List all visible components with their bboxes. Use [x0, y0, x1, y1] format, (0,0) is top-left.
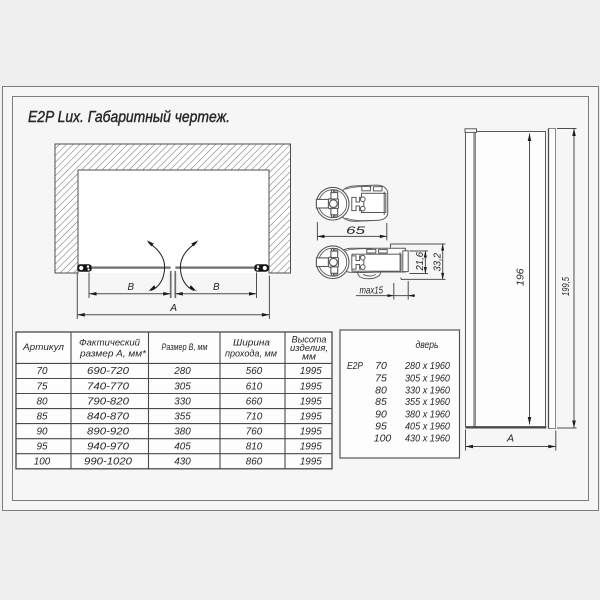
- svg-text:75: 75: [37, 381, 48, 392]
- svg-text:430: 430: [174, 457, 191, 468]
- svg-text:790-820: 790-820: [87, 396, 130, 407]
- svg-text:Размер В, мм: Размер В, мм: [162, 342, 208, 352]
- svg-text:65: 65: [346, 225, 367, 237]
- svg-text:380: 380: [174, 426, 191, 437]
- svg-text:890-920: 890-920: [87, 426, 130, 437]
- svg-text:A: A: [169, 303, 177, 314]
- svg-text:100: 100: [34, 457, 51, 468]
- svg-text:E2P: E2P: [347, 360, 363, 372]
- svg-text:990-1020: 990-1020: [84, 457, 133, 468]
- svg-text:1995: 1995: [300, 442, 322, 453]
- svg-text:280: 280: [173, 366, 191, 377]
- svg-text:дверь: дверь: [416, 339, 439, 351]
- svg-text:740-770: 740-770: [87, 381, 130, 392]
- svg-text:прохода, мм: прохода, мм: [225, 349, 278, 359]
- svg-text:660: 660: [246, 396, 263, 407]
- svg-text:max15: max15: [360, 286, 384, 297]
- svg-text:85: 85: [37, 411, 48, 422]
- svg-text:95: 95: [37, 442, 48, 453]
- svg-text:85: 85: [375, 396, 387, 408]
- svg-text:330 x 1960: 330 x 1960: [405, 385, 450, 397]
- svg-text:21,6: 21,6: [415, 252, 426, 272]
- svg-text:199,5: 199,5: [560, 277, 572, 296]
- svg-text:1995: 1995: [300, 457, 322, 468]
- svg-text:90: 90: [375, 409, 387, 421]
- svg-text:380 x 1960: 380 x 1960: [405, 409, 450, 421]
- svg-text:E2P Lux. Габаритный чертеж.: E2P Lux. Габаритный чертеж.: [28, 109, 230, 126]
- svg-text:940-970: 940-970: [87, 442, 130, 453]
- svg-text:B: B: [213, 282, 220, 293]
- svg-text:1995: 1995: [300, 381, 322, 392]
- svg-text:Фактический: Фактический: [79, 338, 140, 348]
- svg-text:355: 355: [174, 411, 191, 422]
- svg-text:280 x 1960: 280 x 1960: [404, 360, 450, 372]
- svg-text:355 x 1960: 355 x 1960: [405, 396, 450, 408]
- svg-text:Ширина: Ширина: [233, 338, 270, 348]
- svg-text:B: B: [128, 282, 135, 293]
- svg-text:размер А, мм*: размер А, мм*: [79, 349, 146, 359]
- svg-text:33,2: 33,2: [432, 253, 443, 272]
- svg-text:80: 80: [37, 396, 48, 407]
- svg-text:760: 760: [246, 426, 263, 437]
- svg-text:405: 405: [174, 442, 191, 453]
- svg-text:810: 810: [246, 442, 263, 453]
- svg-text:710: 710: [246, 411, 263, 422]
- svg-text:405 x 1960: 405 x 1960: [405, 421, 450, 433]
- svg-text:1995: 1995: [300, 426, 322, 437]
- svg-text:610: 610: [246, 381, 263, 392]
- svg-text:A: A: [506, 433, 514, 445]
- svg-text:196: 196: [514, 268, 526, 286]
- svg-text:90: 90: [37, 426, 48, 437]
- svg-text:70: 70: [37, 366, 48, 377]
- svg-text:305 x 1960: 305 x 1960: [405, 373, 450, 385]
- svg-text:75: 75: [375, 373, 387, 385]
- svg-text:840-870: 840-870: [87, 411, 130, 422]
- svg-text:560: 560: [246, 366, 263, 377]
- svg-text:430 x 1960: 430 x 1960: [405, 433, 450, 445]
- svg-text:860: 860: [246, 457, 263, 468]
- svg-text:95: 95: [375, 421, 387, 433]
- svg-text:1995: 1995: [300, 411, 322, 422]
- svg-text:Артикул: Артикул: [22, 342, 65, 352]
- svg-text:70: 70: [375, 360, 387, 372]
- svg-text:1995: 1995: [300, 396, 322, 407]
- svg-text:1995: 1995: [300, 366, 322, 377]
- svg-text:690-720: 690-720: [87, 366, 130, 377]
- svg-text:100: 100: [374, 433, 392, 445]
- svg-text:330: 330: [174, 396, 191, 407]
- svg-text:мм: мм: [302, 352, 317, 362]
- svg-text:305: 305: [174, 381, 191, 392]
- svg-text:80: 80: [375, 385, 387, 397]
